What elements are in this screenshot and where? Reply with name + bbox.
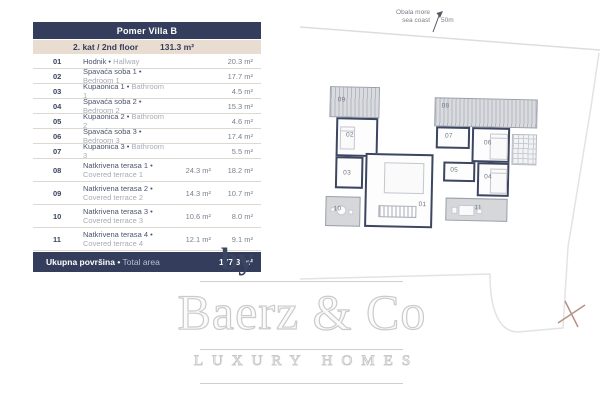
room-label-08: 08 <box>442 102 450 109</box>
terrace-3 <box>325 196 361 227</box>
room-label-03: 03 <box>343 169 351 176</box>
watermark-rule-bottom <box>200 383 403 384</box>
gross-area: 14.3 m² <box>167 189 211 198</box>
site-marker-x-icon <box>558 301 585 327</box>
room-rows: 01 Hodnik • Hallway 20.3 m² 02 Spavaća s… <box>33 54 261 251</box>
room-name: Natkrivena terasa 3 • Covered terrace 3 <box>83 207 167 225</box>
table-row: 10 Natkrivena terasa 3 • Covered terrace… <box>33 205 261 228</box>
room-label-01: 01 <box>418 201 426 208</box>
chair-icon <box>451 207 457 214</box>
distance-label: 50m <box>441 17 454 24</box>
room-number: 05 <box>33 117 83 126</box>
room-name: Kupaonica 3 • Bathroom 3 <box>83 142 167 160</box>
net-area: 10.7 m² <box>211 189 261 198</box>
room-number: 09 <box>33 189 83 198</box>
chair-icon <box>348 210 353 215</box>
room-name-hr: Kupaonica 2 • <box>83 112 129 121</box>
floor-area-value: 131.3 m² <box>160 42 194 52</box>
room-number: 02 <box>33 72 83 81</box>
room-label-02: 02 <box>346 131 354 138</box>
room-name-en: Covered terrace 1 <box>83 170 143 179</box>
table-row: 09 Natkrivena terasa 2 • Covered terrace… <box>33 182 261 205</box>
gross-area: 10.6 m² <box>167 212 211 221</box>
room-name-en: Covered terrace 3 <box>83 216 143 225</box>
room-name-hr: Natkrivena terasa 2 • <box>83 184 153 193</box>
room-name-hr: Spavaća soba 1 • <box>83 67 142 76</box>
net-area: 15.3 m² <box>211 102 261 111</box>
room-label-05: 05 <box>450 167 458 174</box>
room-name-hr: Kupaonica 1 • <box>83 82 129 91</box>
room-label-11: 11 <box>474 204 482 211</box>
room-name-hr: Spavaća soba 2 • <box>83 97 142 106</box>
net-area: 17.7 m² <box>211 72 261 81</box>
room-bathroom-2 <box>443 161 475 182</box>
room-name-en: Covered terrace 4 <box>83 239 143 248</box>
watermark-rule-top <box>200 281 403 282</box>
net-area: 8.0 m² <box>211 212 261 221</box>
area-table: Pomer Villa B 2. kat / 2nd floor 131.3 m… <box>33 22 261 272</box>
room-bedroom-1 <box>336 117 379 157</box>
net-area: 17.4 m² <box>211 132 261 141</box>
room-number: 04 <box>33 102 83 111</box>
room-number: 07 <box>33 147 83 156</box>
room-name: Natkrivena terasa 4 • Covered terrace 4 <box>83 230 167 248</box>
sea-coast-annotation: Obala more sea coast <box>378 9 430 25</box>
room-name-hr: Natkrivena terasa 3 • <box>83 207 153 216</box>
room-name-hr: Kupaonica 3 • <box>83 142 129 151</box>
watermark-tagline: LUXURY HOMES <box>160 353 444 370</box>
room-label-04: 04 <box>484 173 492 180</box>
gross-area: 24.3 m² <box>167 166 211 175</box>
room-label-09: 09 <box>338 96 346 103</box>
net-area: 4.5 m² <box>211 87 261 96</box>
stairs-icon <box>378 205 416 218</box>
room-name-hr: Natkrivena terasa 4 • <box>83 230 153 239</box>
watermark-rule-middle <box>200 349 403 350</box>
room-label-07: 07 <box>445 133 453 140</box>
room-number: 06 <box>33 132 83 141</box>
hall-furniture <box>384 162 425 194</box>
watermark-by: by <box>221 241 254 277</box>
total-label-hr: Ukupna površina • <box>46 257 120 267</box>
external-stairs-icon <box>511 134 537 166</box>
room-number: 11 <box>33 235 83 244</box>
room-number: 03 <box>33 87 83 96</box>
room-label-06: 06 <box>484 139 492 146</box>
room-name: Hodnik • Hallway <box>83 57 167 66</box>
room-hallway <box>364 153 434 228</box>
gross-area: 12.1 m² <box>167 235 211 244</box>
building-outline: 09 02 03 10 01 08 07 06 05 04 11 <box>322 86 540 235</box>
site-boundary-top <box>300 27 600 50</box>
floor-label: 2. kat / 2nd floor <box>73 42 138 52</box>
room-name-en: Hallway <box>113 57 139 66</box>
net-area: 20.3 m² <box>211 57 261 66</box>
villa-title: Pomer Villa B <box>117 26 177 36</box>
watermark-brand: Baerz & Co <box>160 283 444 341</box>
room-name: Natkrivena terasa 1 • Covered terrace 1 <box>83 161 167 179</box>
room-name-hr: Spavaća soba 3 • <box>83 127 142 136</box>
room-name-hr: Hodnik • <box>83 57 111 66</box>
room-number: 08 <box>33 166 83 175</box>
table-row: 08 Natkrivena terasa 1 • Covered terrace… <box>33 159 261 182</box>
table-row: 07 Kupaonica 3 • Bathroom 3 5.5 m² <box>33 144 261 159</box>
room-name: Natkrivena terasa 2 • Covered terrace 2 <box>83 184 167 202</box>
table-title-bar: Pomer Villa B <box>33 22 261 39</box>
room-number: 10 <box>33 212 83 221</box>
room-name-hr: Natkrivena terasa 1 • <box>83 161 153 170</box>
total-label-en: Total area <box>120 257 160 267</box>
floor-header-row: 2. kat / 2nd floor 131.3 m² <box>33 40 261 54</box>
total-label: Ukupna površina • Total area <box>33 257 219 267</box>
room-bedroom-2 <box>477 162 510 197</box>
table-icon <box>458 205 474 216</box>
net-area: 5.5 m² <box>211 147 261 156</box>
room-number: 01 <box>33 57 83 66</box>
room-name-en: Covered terrace 2 <box>83 193 143 202</box>
net-area: 4.6 m² <box>211 117 261 126</box>
terrace-1-pergola <box>434 97 538 128</box>
sea-coast-label-en: sea coast <box>378 17 430 25</box>
sea-coast-label-hr: Obala more <box>378 9 430 17</box>
net-area: 18.2 m² <box>211 166 261 175</box>
room-label-10: 10 <box>333 205 341 212</box>
